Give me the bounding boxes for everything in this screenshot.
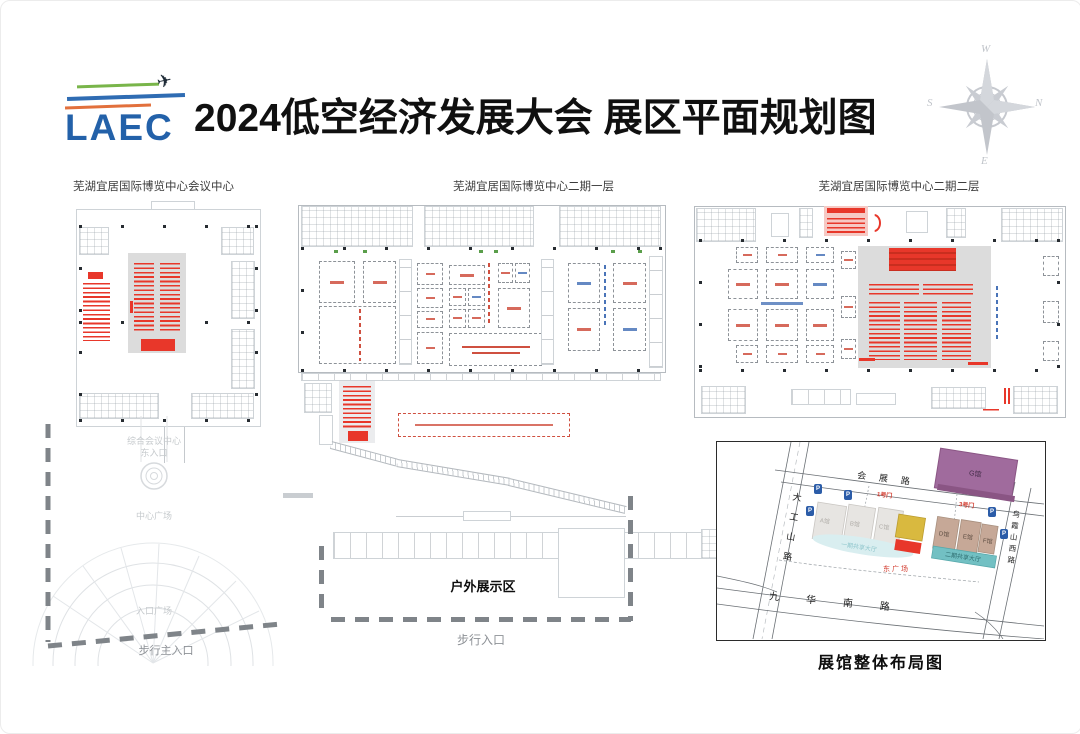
booth [417,263,443,285]
booth [766,247,798,263]
compass-star [931,51,1043,163]
stage [141,339,175,351]
outdoor-exhibition-label: 户外展示区 [433,576,533,595]
plant-icon [638,250,642,253]
auditorium-stage [348,431,368,441]
booth [841,251,856,269]
main-pedestrian-entrance-label: 步行主入口 [126,642,206,658]
path-line [396,516,626,517]
booth [736,345,758,363]
annotation-booth [449,333,542,366]
room [906,211,928,233]
walkway-ramp [396,459,510,486]
service-strip [399,259,412,365]
hall-c-label: C馆 [878,521,890,532]
red-rows [827,218,865,234]
corner-module [696,208,756,242]
east-entrance-label-line2: 东入口 [132,446,176,459]
column-row [79,225,257,228]
column-row [301,369,661,372]
booth [806,247,834,263]
plant-icon [611,250,615,253]
column-row [699,239,1057,242]
compass-letter-bottom: E [981,155,988,167]
booth [766,345,798,363]
booth [363,261,396,303]
outdoor-structures [333,532,715,559]
booth [319,306,396,364]
vertical-label-marks [359,309,361,361]
booth [613,308,646,351]
room [1043,256,1059,276]
vip-rows [923,284,973,297]
parking-icon: P [988,507,996,517]
logo-wordmark: LAEC [65,107,174,149]
tiny-red-text [472,352,520,354]
hall-g-label: G馆 [968,468,982,480]
stage-control-room [824,206,868,236]
room [221,227,254,255]
gate3-label: 3号门 [959,499,975,510]
airplane-icon: ✈ [155,70,174,94]
room [301,206,413,247]
walkway-ramp [508,478,627,514]
boundary-dashed [319,546,324,618]
site-map-caption: 展馆整体布局图 [716,649,1046,673]
hall-d-label: D馆 [938,528,950,539]
small-seating [83,283,110,341]
pedestrian-entrance-label: 步行入口 [441,631,521,648]
hall-e-label: E馆 [962,531,973,541]
room [231,329,255,389]
plant-icon [494,250,498,253]
seating-left-block [134,263,154,333]
service-strip [541,259,554,365]
booth [806,309,834,341]
hall-b-label: B馆 [849,518,860,528]
booth [468,288,485,306]
booth [766,309,798,341]
vip-rows [869,284,919,297]
plan1-label: 芜湖宜居国际博览中心会议中心 [61,178,246,194]
room [1043,341,1059,361]
booth [613,263,646,303]
booth [498,288,530,328]
central-plaza-label: 中心广场 [128,509,180,522]
vertical-label-marks [604,265,606,325]
room [946,208,966,238]
plant-icon [334,250,338,253]
booth [498,263,513,283]
east-plaza-label: 东广场 [883,564,910,574]
booth [449,265,485,285]
column-col [699,239,702,369]
stair-module [304,383,332,413]
corner-module [1001,208,1063,242]
room [799,208,813,238]
hall-a-label: A馆 [819,515,830,525]
booth [449,288,466,306]
room [424,206,534,247]
connector-label-marks [761,302,803,305]
column-col [255,225,258,420]
plant-icon [479,250,483,253]
outdoor-pad [558,528,625,598]
corridor [301,373,661,381]
entry-strip [968,362,988,365]
booth [449,309,466,328]
booth [319,261,355,303]
parking-icon: P [806,506,814,516]
tiny-red-text [462,346,530,348]
module [931,387,986,409]
compass-letter-right: N [1035,97,1042,109]
compass-letter-left: S [927,97,933,109]
plan3-label: 芜湖宜居国际博览中心二期二层 [784,178,1014,194]
room [1043,301,1059,323]
poster-canvas: ✈ LAEC 2024低空经济发展大会 展区平面规划图 W N E S 芜湖宜居… [0,0,1080,734]
booth [515,263,530,283]
booth [728,269,758,299]
lobby-module [319,415,333,445]
page-title: 2024低空经济发展大会 展区平面规划图 [194,87,877,143]
booth [417,288,443,308]
booth [417,332,443,364]
service-strip [649,256,663,368]
entrance-plaza-label: 入口广场 [127,604,181,617]
red-divider [1004,388,1006,404]
gate1-label: 1号门 [877,489,893,500]
seat-column [869,302,900,360]
room [79,227,109,255]
plan-phase2-floor2 [691,201,1069,421]
vertical-label-marks [996,286,998,341]
booth [766,269,798,299]
column-col [301,247,304,369]
plan2-label: 芜湖宜居国际博览中心二期一层 [416,178,651,194]
seat-column [904,302,937,360]
seat-column [942,302,971,360]
parking-icon: P [1000,529,1008,539]
tiny-red-text [415,424,553,426]
plan-conference-center [71,201,271,441]
seating-right-block [160,263,180,333]
booth [568,308,600,351]
main-stage [889,248,956,271]
vertical-label-marks [488,263,490,326]
site-map: 会展路 大工山路 九华南路 乌霞山西路 A馆 B馆 C馆 D馆 E馆 F馆 G馆… [716,441,1046,641]
side-podium [130,301,133,313]
logo-speedline-green [77,83,159,89]
parking-icon: P [814,484,822,494]
red-divider [1008,388,1010,404]
red-dots-row [983,409,999,413]
booth [736,247,758,263]
booth [468,309,485,328]
room [771,213,789,237]
hall-f-label: F馆 [982,535,993,545]
module [856,393,896,405]
plant-icon [363,250,367,253]
boundary-dashed [331,617,631,622]
column-row [699,369,1057,372]
booth [806,345,834,363]
booth [568,263,600,303]
booth [841,296,856,318]
red-strip [827,208,865,213]
logo-speedline-blue [67,93,185,101]
booth [806,269,834,299]
stair-module [1013,386,1058,414]
room [231,261,255,319]
stair-module [701,386,746,414]
room [559,206,661,247]
entry-strip [859,358,875,361]
compass-rose: W N E S [931,51,1043,163]
auditorium-seats [343,386,371,429]
connector-bar [283,493,313,498]
booth [728,309,758,341]
path-node [463,511,511,521]
small-stage [88,272,103,279]
laec-logo: ✈ LAEC [61,65,191,155]
red-dashed-annotation [398,413,570,437]
parking-icon: P [844,490,852,500]
module [791,389,851,405]
roof-canopy [151,201,195,210]
boundary-dashed [628,496,633,621]
column-col [79,225,82,420]
booth [417,311,443,328]
booth [841,339,856,359]
compass-letter-top: W [981,43,990,55]
